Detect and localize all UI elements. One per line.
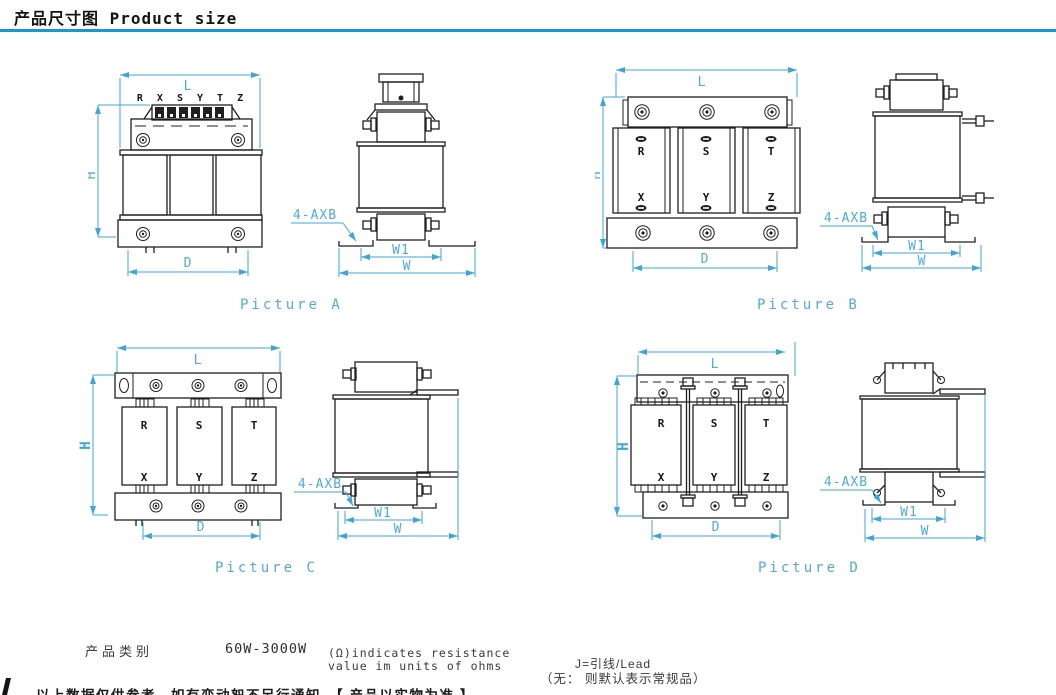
svg-text:X: X [141, 471, 148, 484]
svg-text:Y: Y [711, 471, 718, 484]
svg-text:W: W [394, 522, 403, 537]
svg-text:T: T [251, 419, 258, 432]
svg-text:L: L [184, 79, 193, 94]
svg-text:D: D [701, 252, 710, 267]
svg-text:D: D [712, 520, 721, 535]
svg-text:T: T [763, 417, 770, 430]
svg-text:Z: Z [251, 471, 258, 484]
top-clamp [876, 74, 957, 110]
dimension-h: H [616, 376, 642, 516]
dimension-d: D [652, 520, 780, 540]
svg-text:Z: Z [763, 471, 770, 484]
dimension-d: D [128, 250, 248, 276]
coil-body [860, 396, 959, 472]
terminal-labels: R X S Y T Z [137, 93, 247, 104]
svg-text:D: D [184, 256, 193, 271]
mounting-base [607, 218, 797, 248]
dimension-l: L [638, 342, 795, 376]
svg-text:W: W [403, 259, 412, 274]
svg-text:H: H [595, 171, 604, 180]
bottom-clamp [363, 214, 439, 240]
dimension-w1: W1 [872, 505, 945, 523]
figure-a-side-view: 4-AXB W1 W [285, 60, 490, 285]
callout-4axb: 4-AXB [291, 208, 356, 241]
corner-mark [0, 678, 14, 695]
figure-b-side-view: 4-AXB W1 W [818, 55, 1003, 290]
bottom-clamp [874, 207, 958, 237]
terminal-pins [962, 116, 994, 203]
dimension-w: W [338, 398, 458, 540]
figure-d-front-view: L H [598, 330, 848, 560]
svg-text:W1: W1 [900, 505, 918, 520]
svg-text:H: H [616, 441, 632, 450]
svg-text:R: R [141, 419, 148, 432]
svg-text:W1: W1 [392, 243, 410, 258]
dimension-w1: W1 [345, 506, 422, 524]
top-clamp [343, 362, 431, 392]
dimension-d: D [143, 520, 260, 540]
svg-text:Y: Y [196, 471, 203, 484]
terminal-box [379, 74, 423, 102]
mounting-base [118, 220, 262, 253]
svg-text:T: T [768, 145, 775, 158]
top-clamp [115, 373, 281, 398]
svg-text:R: R [658, 417, 665, 430]
header-accent-rule [0, 29, 1056, 32]
top-clamp [874, 363, 945, 393]
svg-text:L: L [698, 75, 707, 90]
category-label: 产品类别 [85, 641, 153, 660]
figure-b-front-view: L H R S T X [595, 55, 845, 295]
power-range: 60W-3000W [225, 641, 307, 657]
top-mounting-wing [410, 390, 458, 395]
bottom-mounting-wing [940, 472, 985, 477]
svg-text:X: X [638, 191, 645, 204]
page-title: 产品尺寸图 Product size [14, 5, 237, 29]
bottom-clamp [343, 479, 431, 505]
svg-text:S: S [703, 145, 710, 158]
coil-body [333, 395, 430, 477]
svg-text:X: X [658, 471, 665, 484]
svg-text:4-AXB: 4-AXB [293, 208, 337, 223]
caption-picture-b: Picture B [757, 297, 860, 313]
svg-text:Y: Y [703, 191, 710, 204]
caption-picture-c: Picture C [215, 560, 318, 576]
mounting-base [643, 492, 788, 518]
coil-body [357, 142, 445, 212]
coils: R S T X Y Z [631, 398, 787, 492]
svg-text:4-AXB: 4-AXB [298, 477, 342, 492]
coil-body [873, 112, 962, 202]
svg-text:D: D [197, 520, 206, 535]
caption-picture-d: Picture D [758, 560, 861, 576]
coils: R S T X Y Z [613, 128, 800, 213]
product-size-page: 产品尺寸图 Product size L H R X S Y T Z [0, 0, 1056, 695]
svg-text:L: L [711, 357, 720, 372]
svg-text:S: S [196, 419, 203, 432]
terminal-block [144, 105, 240, 120]
top-clamp [623, 97, 792, 127]
svg-text:H: H [88, 171, 99, 180]
default-note: （无： 则默认表示常规品） [540, 668, 706, 687]
ohm-note: (Ω)indicates resistance value im units o… [328, 647, 510, 673]
ohm-note-line2: value im units of ohms [328, 660, 510, 673]
callout-4axb: 4-AXB [820, 475, 881, 503]
svg-text:L: L [194, 353, 203, 368]
figure-d-side-view: 4-AXB W1 W [815, 333, 1020, 548]
top-clamp [131, 119, 252, 150]
dimension-h: H [88, 105, 150, 237]
dimension-h: H [595, 97, 625, 248]
dimension-l: L [117, 348, 280, 373]
svg-text:S: S [711, 417, 718, 430]
svg-text:4-AXB: 4-AXB [824, 211, 868, 226]
coils: R S T X Y Z [122, 399, 276, 493]
svg-text:W: W [918, 254, 927, 269]
svg-text:W1: W1 [908, 239, 926, 254]
caption-picture-a: Picture A [240, 297, 343, 313]
top-mounting-wing [933, 389, 985, 394]
bottom-clamp [874, 472, 945, 502]
dimension-h: H [78, 375, 114, 515]
svg-text:Z: Z [768, 191, 775, 204]
svg-text:W1: W1 [374, 506, 392, 521]
figure-c-side-view: 4-AXB W1 W [290, 340, 505, 550]
svg-text:H: H [78, 440, 94, 449]
callout-4axb: 4-AXB [820, 211, 878, 240]
callout-4axb: 4-AXB [294, 477, 353, 506]
dimension-d: D [633, 251, 777, 272]
core [120, 150, 262, 220]
dimension-l: L [616, 70, 797, 97]
svg-text:W: W [921, 524, 930, 539]
disclaimer-note: 以上数据仅供参考，如有变动恕不另行通知，【 产品以实物为准 】 [36, 684, 475, 695]
top-clamp [363, 104, 439, 142]
svg-text:R: R [638, 145, 645, 158]
svg-text:4-AXB: 4-AXB [824, 475, 868, 490]
